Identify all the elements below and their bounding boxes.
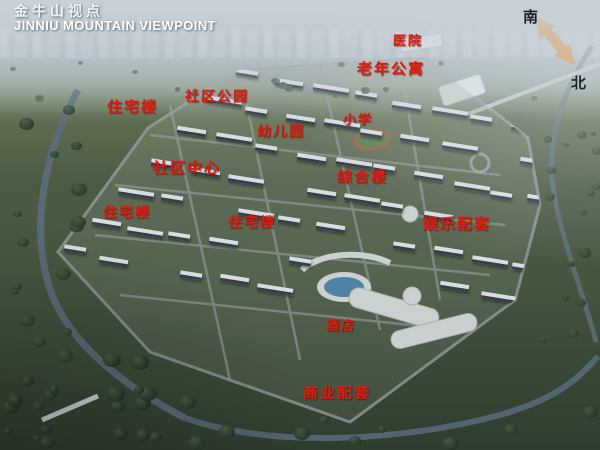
map-label-residential-b: 住宅楼 xyxy=(103,202,152,222)
map-label-residential-c: 住宅楼 xyxy=(228,212,277,232)
map-label-community-park: 社区公园 xyxy=(185,86,250,106)
map-label-hospital: 医院 xyxy=(393,30,424,49)
aerial-rendering: 金牛山视点 JINNIU MOUNTAIN VIEWPOINT 南 北 住宅楼社… xyxy=(0,0,600,450)
compass-north-label: 北 xyxy=(571,72,586,93)
map-label-entertainment-facilities: 娱乐配套 xyxy=(423,213,492,234)
viewpoint-title: 金牛山视点 JINNIU MOUNTAIN VIEWPOINT xyxy=(14,3,216,34)
map-label-residential-a: 住宅楼 xyxy=(107,96,159,117)
bridge xyxy=(42,396,98,420)
north-south-arrow-icon xyxy=(546,30,564,52)
title-english: JINNIU MOUNTAIN VIEWPOINT xyxy=(14,19,216,34)
map-label-hotel: 酒店 xyxy=(326,315,357,334)
map-label-primary-school: 小学 xyxy=(343,109,374,128)
map-label-complex-building: 综合楼 xyxy=(337,166,389,187)
map-label-commercial-facilities: 商业配套 xyxy=(303,382,372,403)
map-label-senior-apartment: 老年公寓 xyxy=(357,58,426,79)
title-chinese: 金牛山视点 xyxy=(14,3,216,19)
compass-south-label: 南 xyxy=(523,6,538,27)
map-label-community-center: 社区中心 xyxy=(153,157,222,178)
map-label-kindergarten: 幼儿园 xyxy=(257,121,306,141)
